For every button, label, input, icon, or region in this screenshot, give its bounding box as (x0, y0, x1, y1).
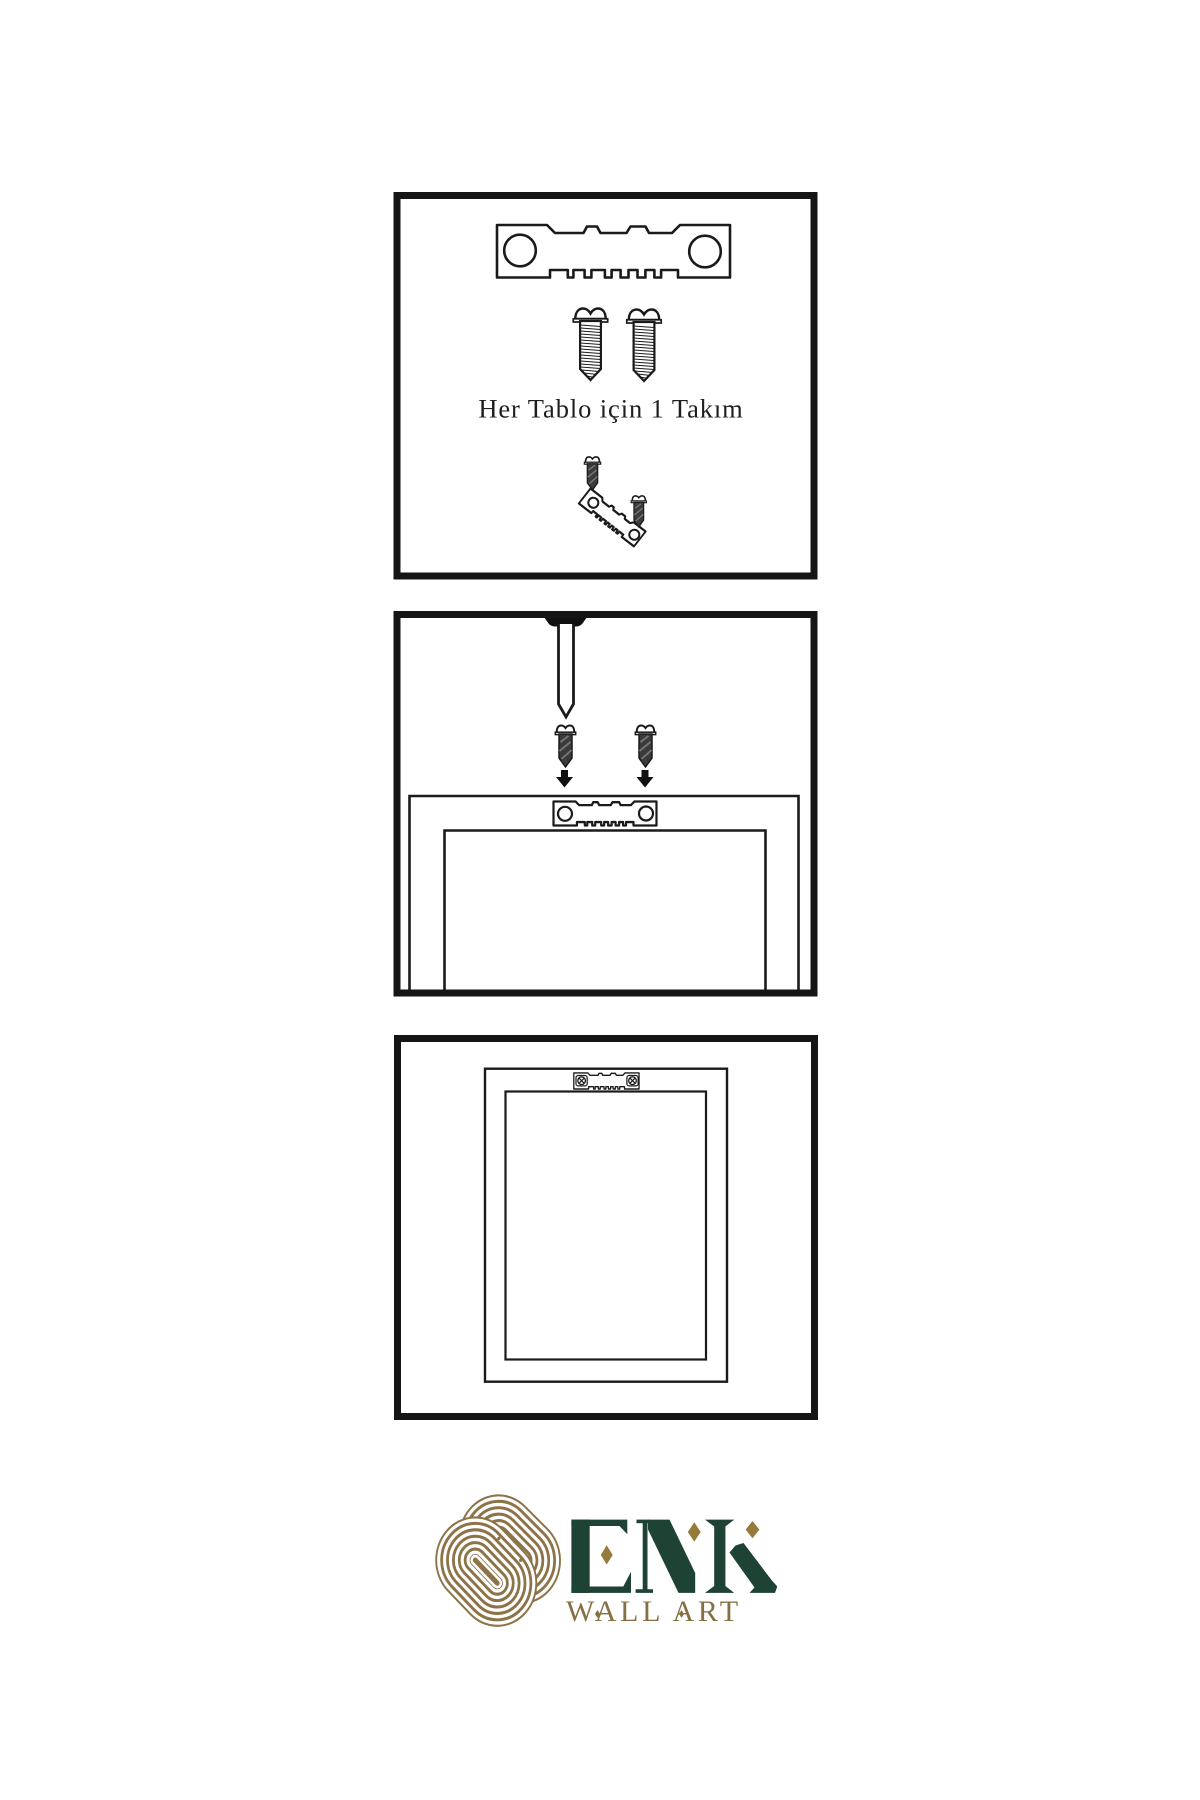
svg-text:Her Tablo için 1 Takım: Her Tablo için 1 Takım (478, 394, 743, 424)
svg-text:WALL ART: WALL ART (566, 1595, 742, 1628)
